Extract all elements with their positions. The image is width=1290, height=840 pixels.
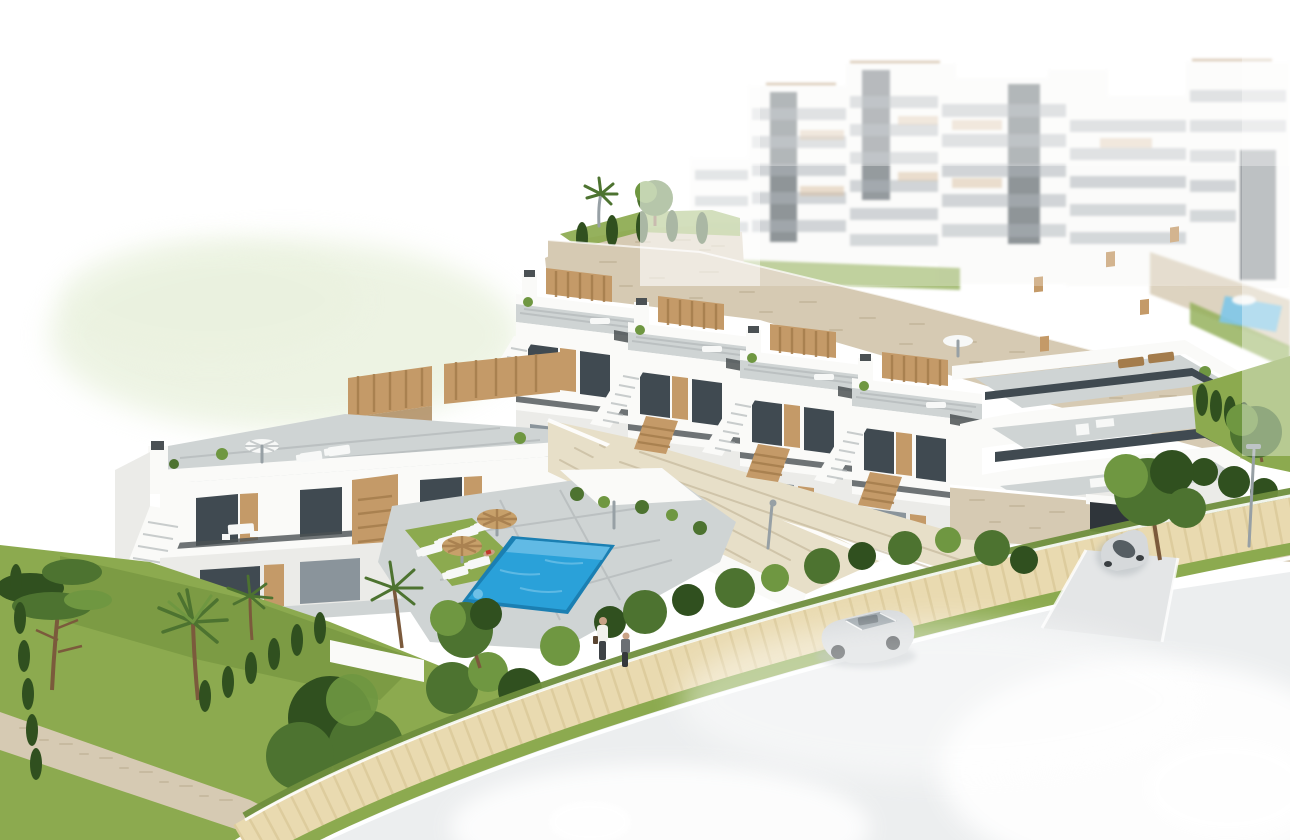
architectural-render <box>0 0 1290 840</box>
cypress-tree <box>606 215 618 247</box>
render-canvas <box>0 0 1290 840</box>
